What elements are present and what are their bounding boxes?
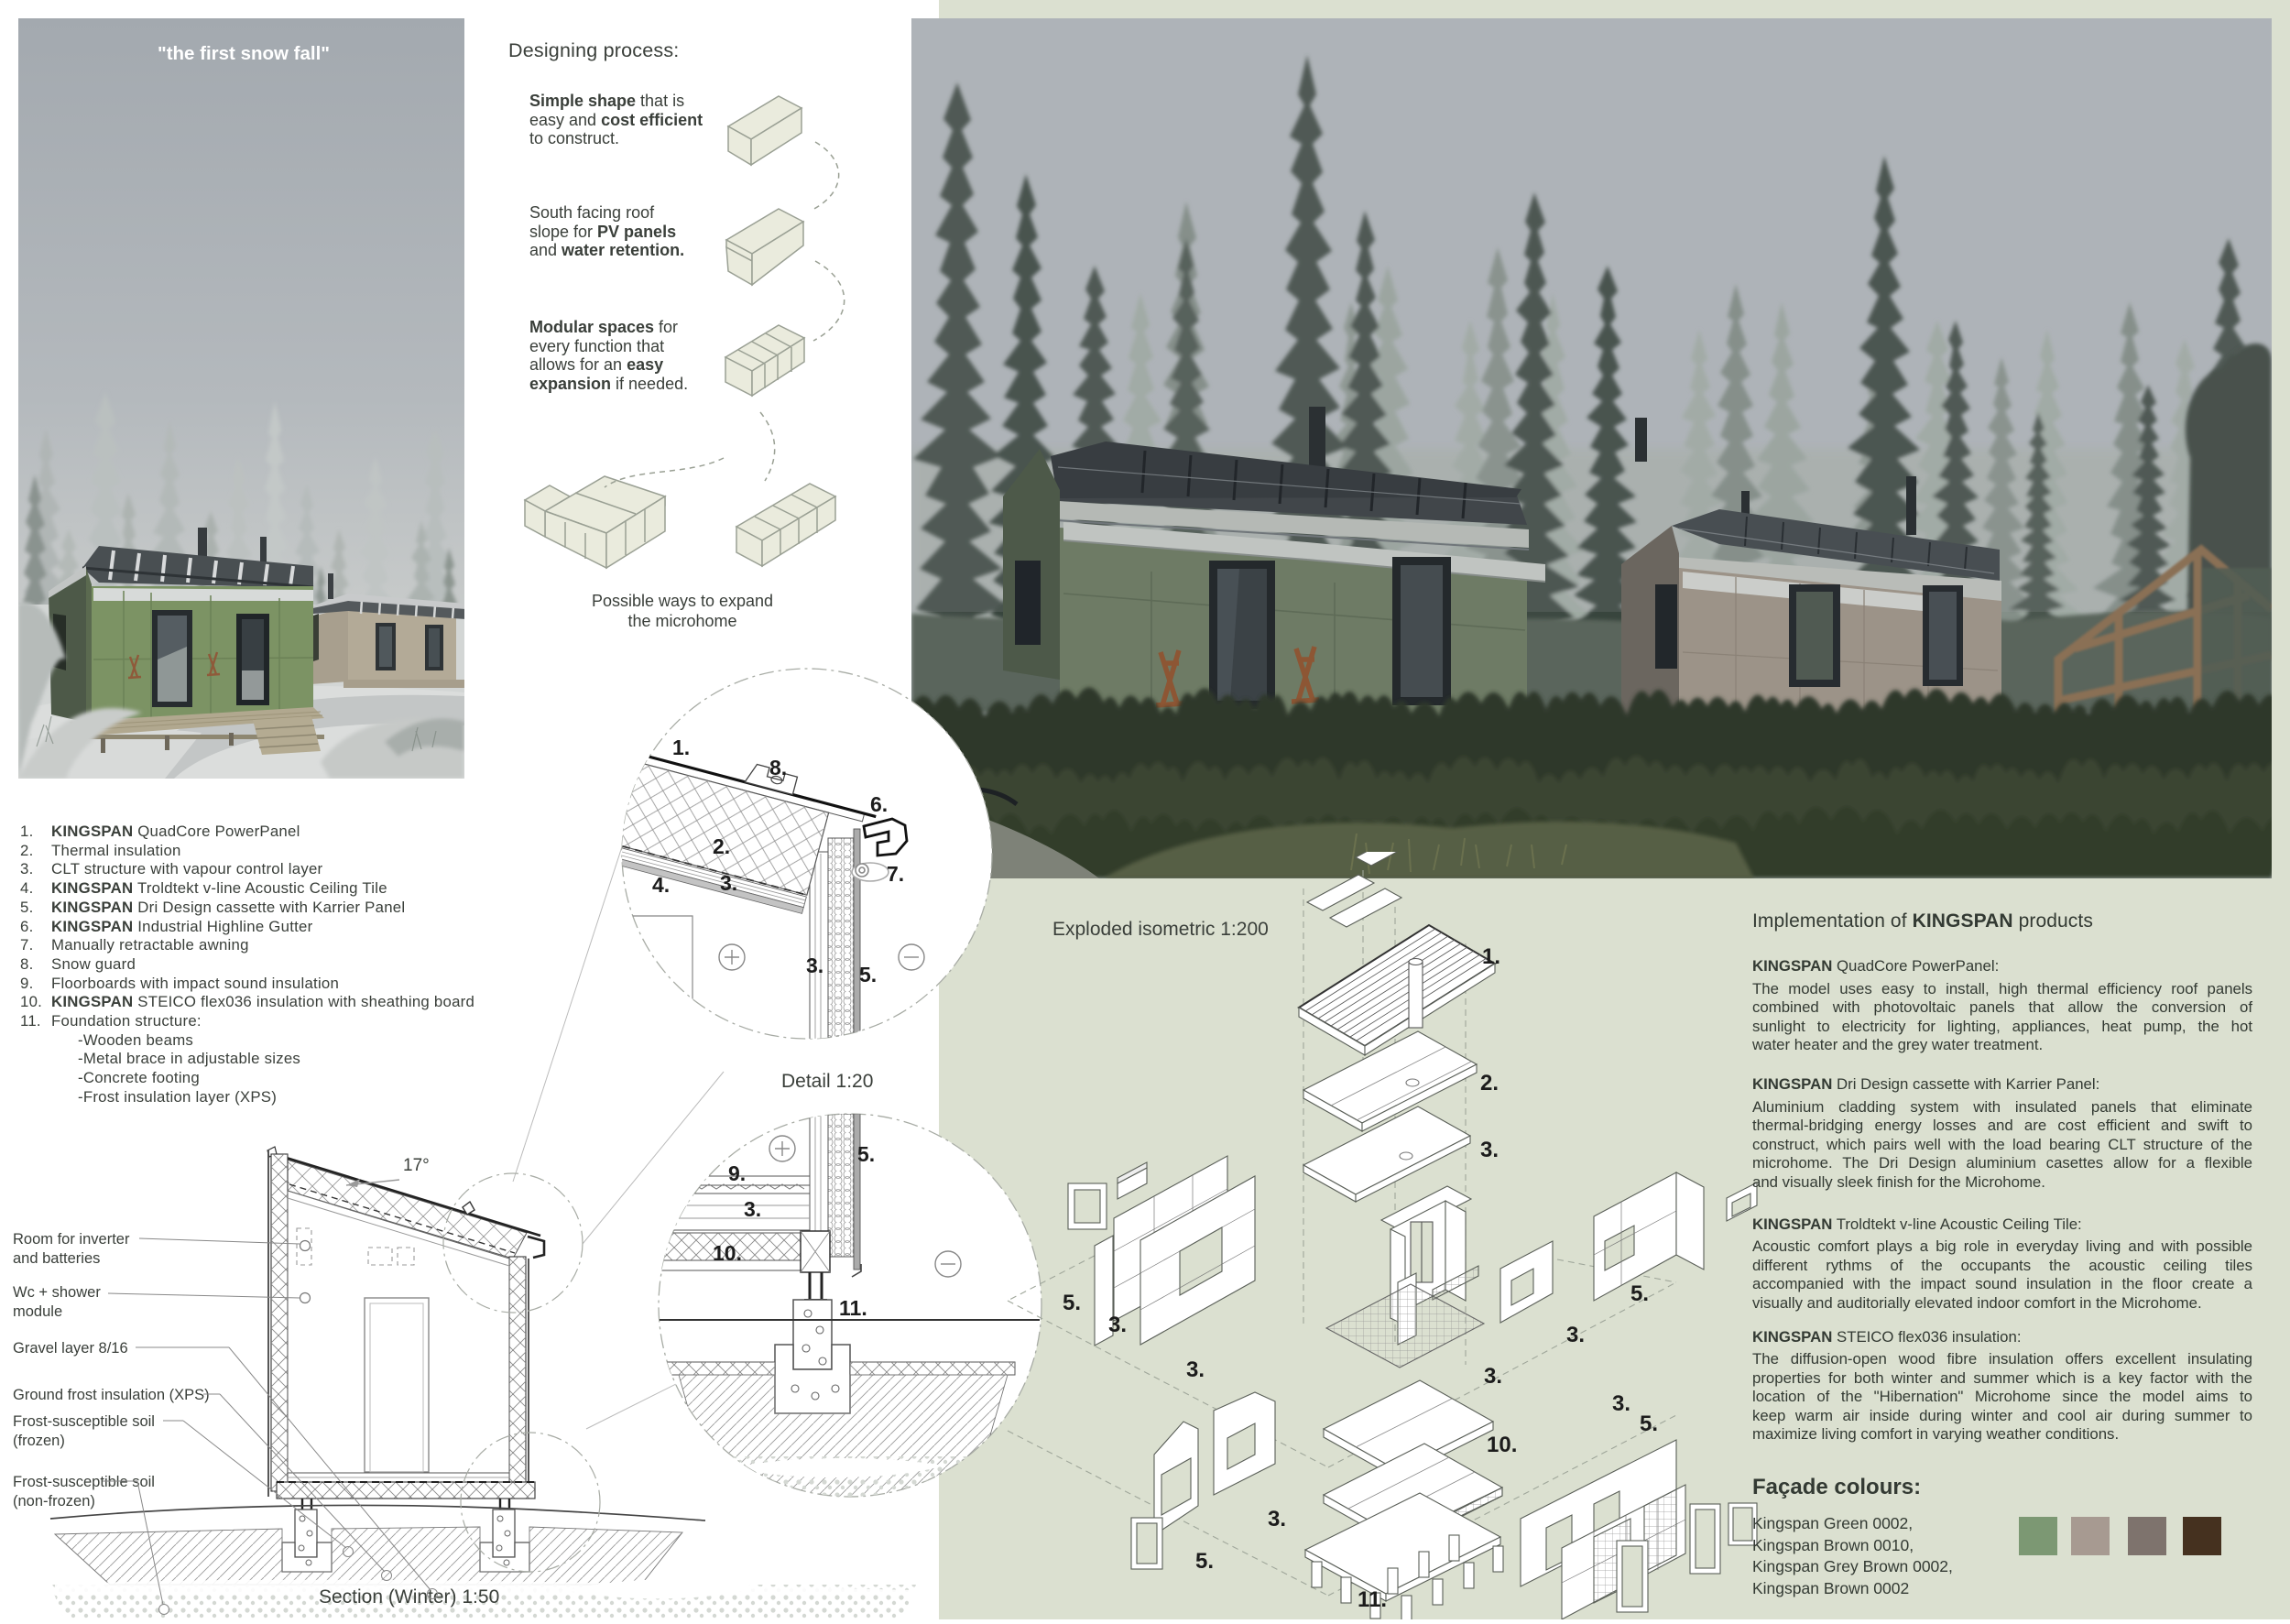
svg-text:Gravel layer 8/16: Gravel layer 8/16 [13,1340,128,1357]
svg-text:Room for inverter: Room for inverter [13,1231,130,1248]
svg-text:Possible ways to expand: Possible ways to expand [592,592,773,610]
svg-text:17°: 17° [403,1156,430,1175]
svg-text:Section (Winter) 1:50: Section (Winter) 1:50 [319,1586,499,1608]
svg-text:10.: 10. [1487,1433,1517,1457]
svg-text:Frost-susceptible soil: Frost-susceptible soil [13,1413,155,1430]
svg-text:3.: 3. [1186,1357,1205,1382]
svg-text:3.: 3. [1108,1313,1127,1337]
svg-text:2.: 2. [713,834,730,858]
svg-text:3.: 3. [806,954,823,977]
svg-text:5.: 5. [857,1142,875,1166]
svg-text:5.: 5. [1640,1411,1658,1436]
svg-text:7.: 7. [887,862,904,886]
svg-text:3.: 3. [1268,1507,1286,1531]
svg-text:3.: 3. [1480,1138,1499,1162]
svg-text:3.: 3. [1566,1323,1585,1347]
svg-text:(frozen): (frozen) [13,1433,65,1449]
svg-text:5.: 5. [1063,1291,1081,1315]
svg-text:the microhome: the microhome [627,612,736,630]
svg-text:4.: 4. [652,873,670,897]
svg-text:and batteries: and batteries [13,1250,100,1267]
svg-text:Detail 1:20: Detail 1:20 [781,1071,873,1092]
svg-text:module: module [13,1303,62,1320]
svg-text:Ground frost insulation (XPS): Ground frost insulation (XPS) [13,1387,210,1403]
svg-text:1.: 1. [672,736,690,759]
svg-text:9.: 9. [728,1161,746,1185]
svg-text:Frost-susceptible soil: Frost-susceptible soil [13,1474,155,1490]
svg-text:5.: 5. [1630,1281,1649,1306]
svg-text:11.: 11. [1358,1587,1387,1612]
svg-text:3.: 3. [744,1197,761,1221]
svg-text:3.: 3. [1484,1364,1502,1389]
svg-text:5.: 5. [859,963,877,986]
svg-text:Exploded isometric 1:200: Exploded isometric 1:200 [1052,919,1269,940]
svg-text:(non-frozen): (non-frozen) [13,1493,95,1510]
svg-text:2.: 2. [1480,1071,1499,1095]
svg-text:8.: 8. [769,756,787,779]
svg-text:6.: 6. [870,792,888,816]
svg-text:Wc + shower: Wc + shower [13,1284,101,1301]
svg-text:11.: 11. [839,1296,867,1320]
svg-text:5.: 5. [1195,1549,1214,1574]
svg-text:1.: 1. [1482,944,1500,969]
svg-text:10.: 10. [713,1241,742,1265]
svg-text:"the first snow fall": "the first snow fall" [158,43,330,64]
svg-text:3.: 3. [720,871,737,895]
svg-text:3.: 3. [1612,1391,1630,1416]
